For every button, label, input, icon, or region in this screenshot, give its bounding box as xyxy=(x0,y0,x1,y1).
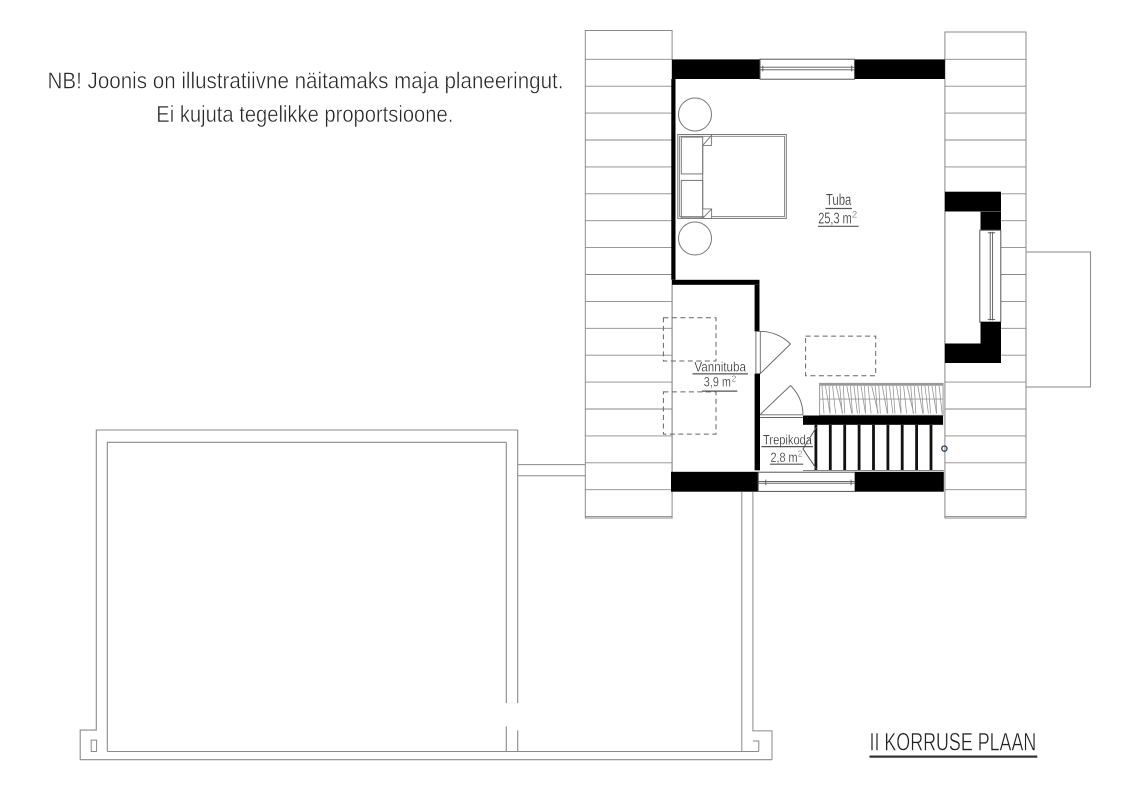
svg-text:25,3 m: 25,3 m xyxy=(818,210,852,227)
svg-text:2: 2 xyxy=(798,449,803,459)
svg-text:NB! Joonis on illustratiivne n: NB! Joonis on illustratiivne näitamaks m… xyxy=(48,68,564,94)
svg-text:Vannituba: Vannituba xyxy=(694,359,746,374)
svg-text:II KORRUSE PLAAN: II KORRUSE PLAAN xyxy=(870,729,1037,757)
svg-text:Ei kujuta tegelikke proportsio: Ei kujuta tegelikke proportsioone. xyxy=(156,101,453,127)
svg-text:2,8 m: 2,8 m xyxy=(770,449,797,465)
svg-text:Trepikoda: Trepikoda xyxy=(763,431,812,447)
svg-text:2: 2 xyxy=(732,374,737,384)
svg-text:2: 2 xyxy=(852,210,857,221)
svg-text:Tuba: Tuba xyxy=(826,192,852,209)
svg-text:3,9 m: 3,9 m xyxy=(704,375,731,390)
